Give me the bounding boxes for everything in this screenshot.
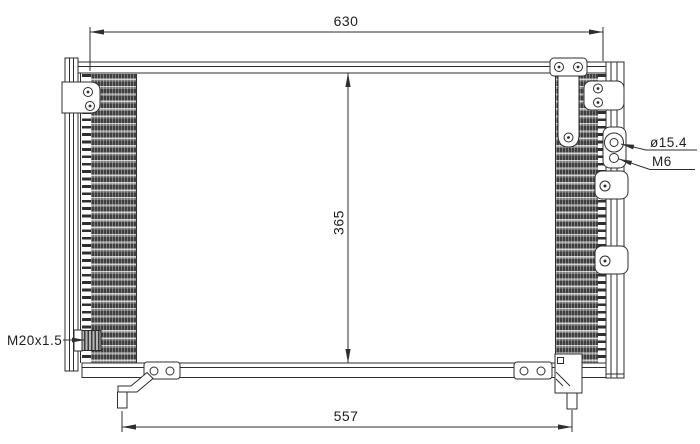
side-bracket-right-middle	[595, 171, 628, 199]
port-bolt-thread-label: M6	[652, 154, 672, 169]
side-bracket-right-upper	[584, 81, 624, 110]
port-circle-small	[610, 154, 619, 163]
dim-overall-width-label: 630	[326, 14, 366, 29]
mounting-bracket-top-left	[62, 82, 100, 113]
refrigerant-port-block	[603, 127, 626, 168]
dim-core-height-label: 365	[332, 201, 347, 245]
mounting-bracket-top-right	[550, 58, 587, 147]
side-bracket-right-lower	[595, 246, 628, 274]
condenser-technical-drawing: 630 365 557 ø15.4 M6 M20x1.5	[0, 0, 700, 444]
drawing-linework	[0, 0, 700, 444]
mounting-foot-bottom-right	[514, 354, 582, 409]
fitting-thread-label: M20x1.5	[7, 333, 62, 348]
top-header-tube	[78, 62, 606, 73]
dim-pin-span-label: 557	[326, 409, 366, 424]
port-diameter-label: ø15.4	[650, 135, 687, 150]
